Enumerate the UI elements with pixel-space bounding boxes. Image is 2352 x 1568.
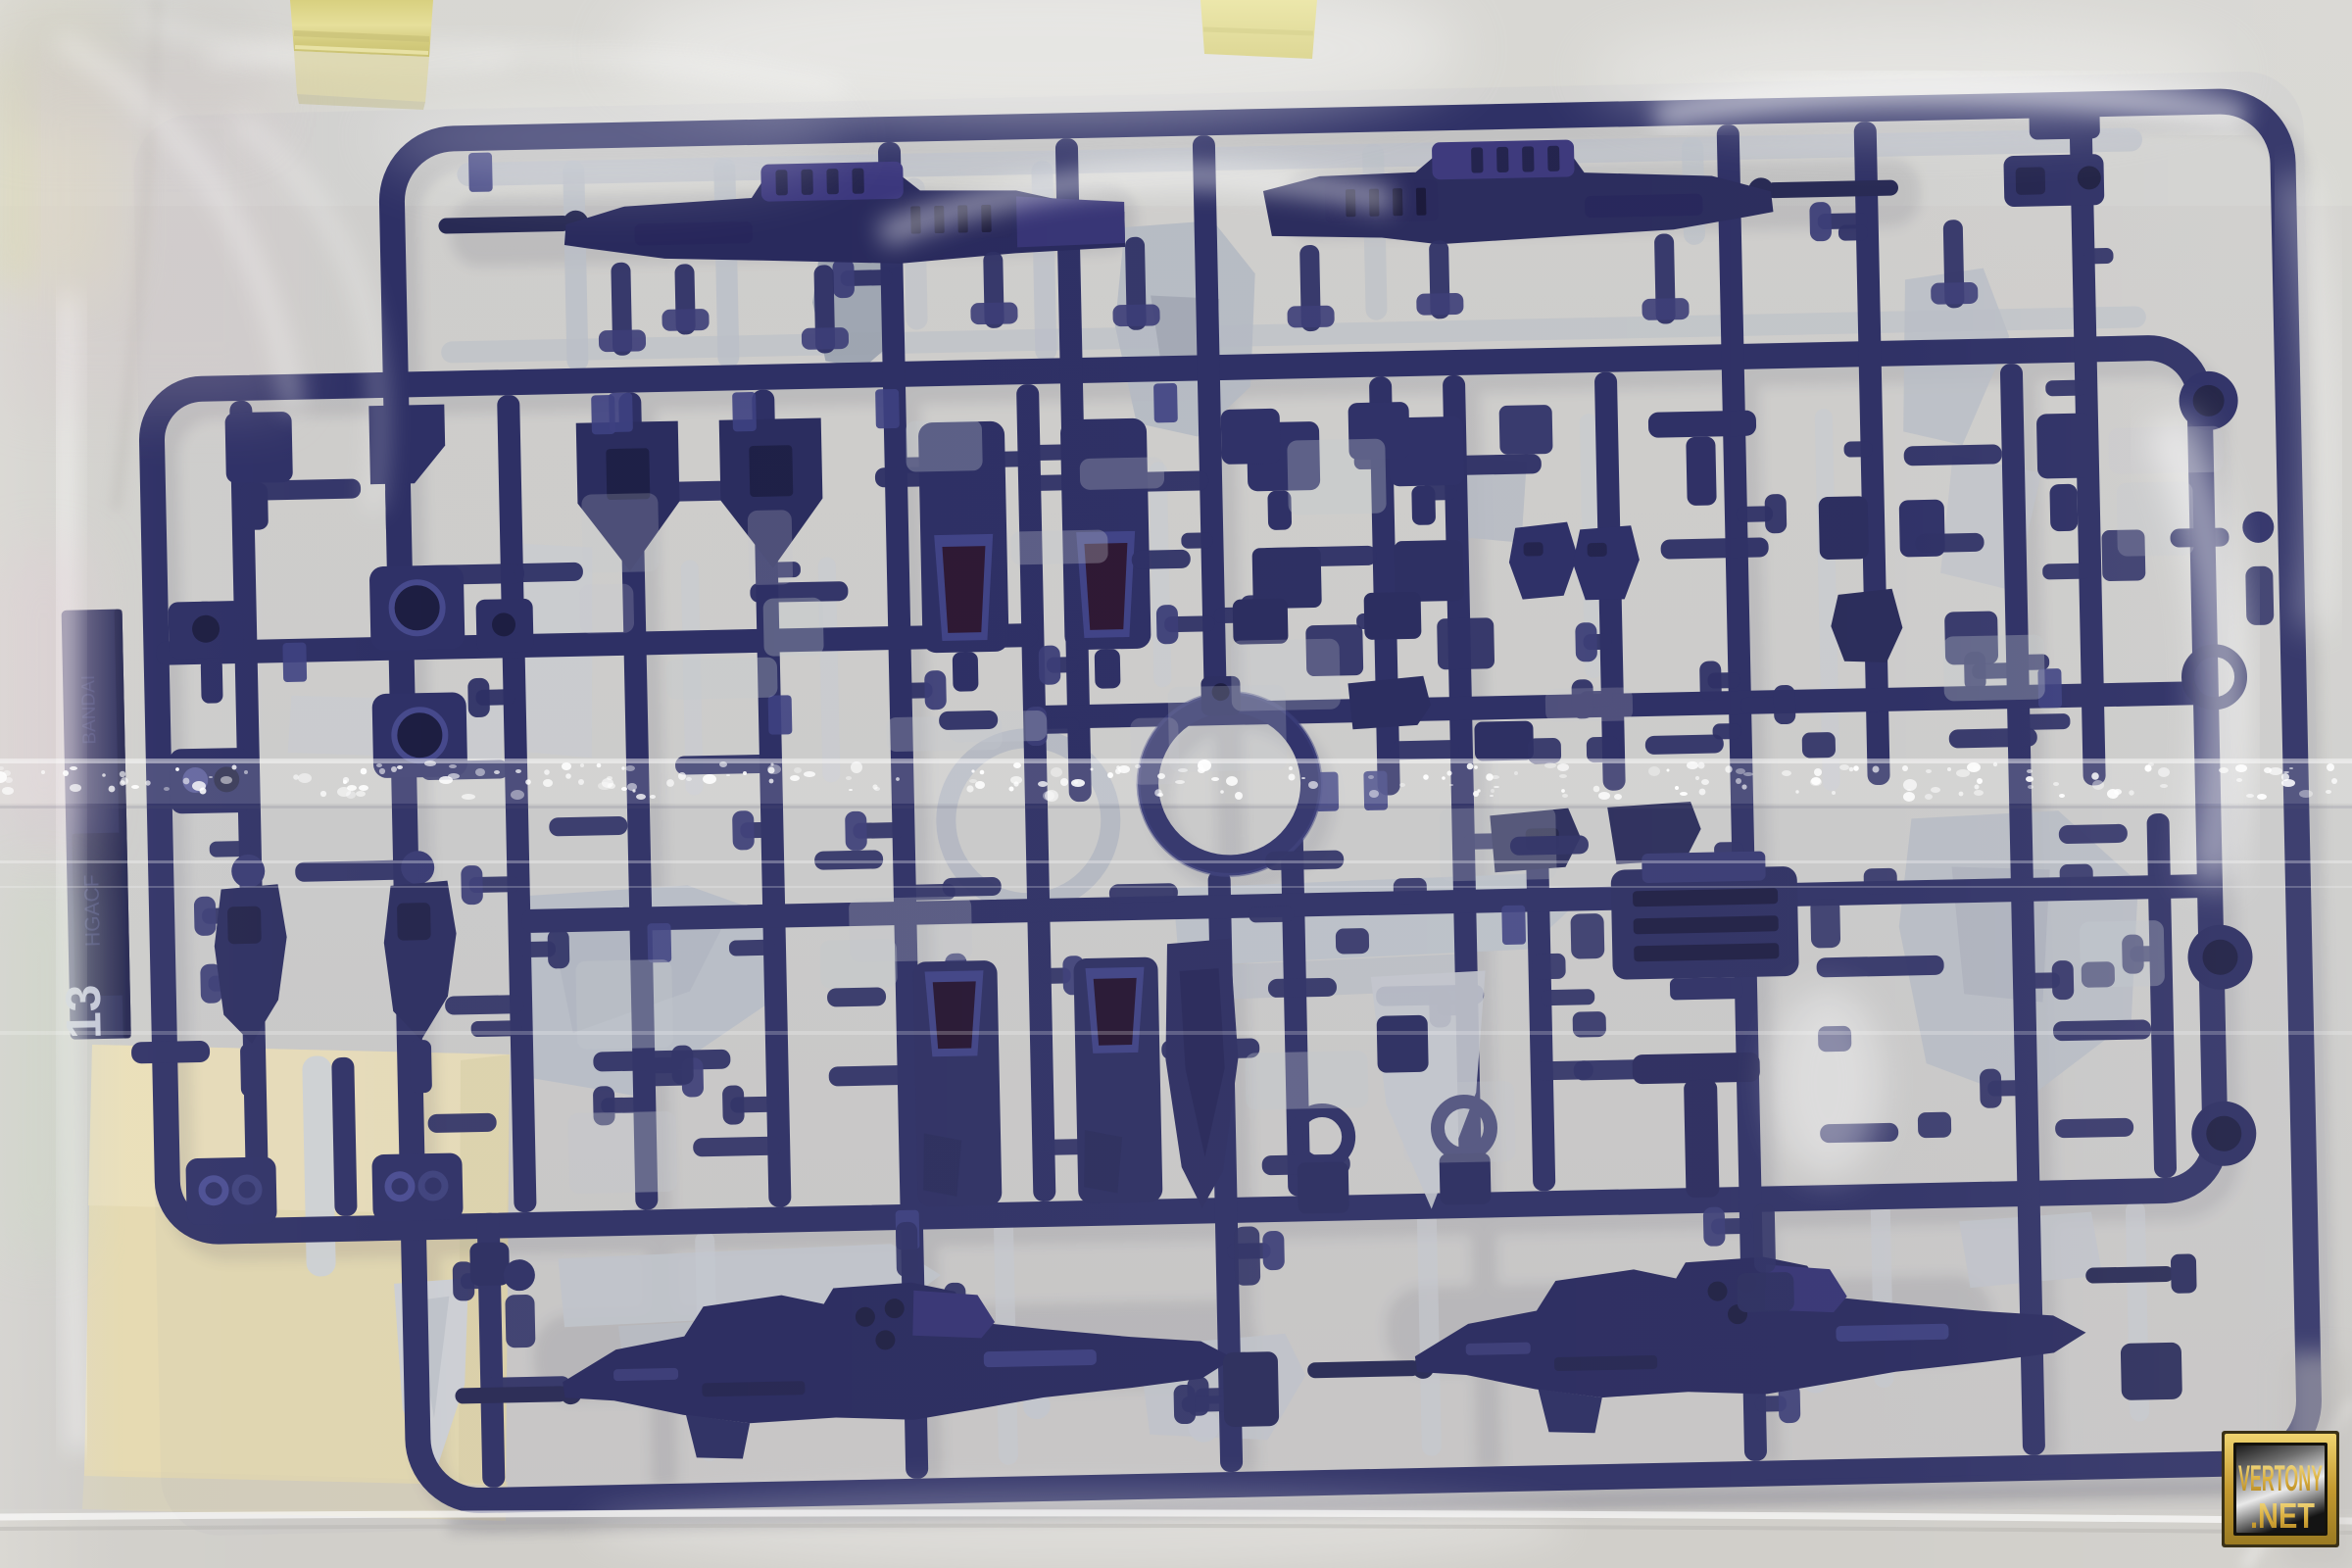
svg-text:VERTONY: VERTONY bbox=[2238, 1458, 2323, 1498]
svg-text:.NET: .NET bbox=[2250, 1495, 2315, 1536]
